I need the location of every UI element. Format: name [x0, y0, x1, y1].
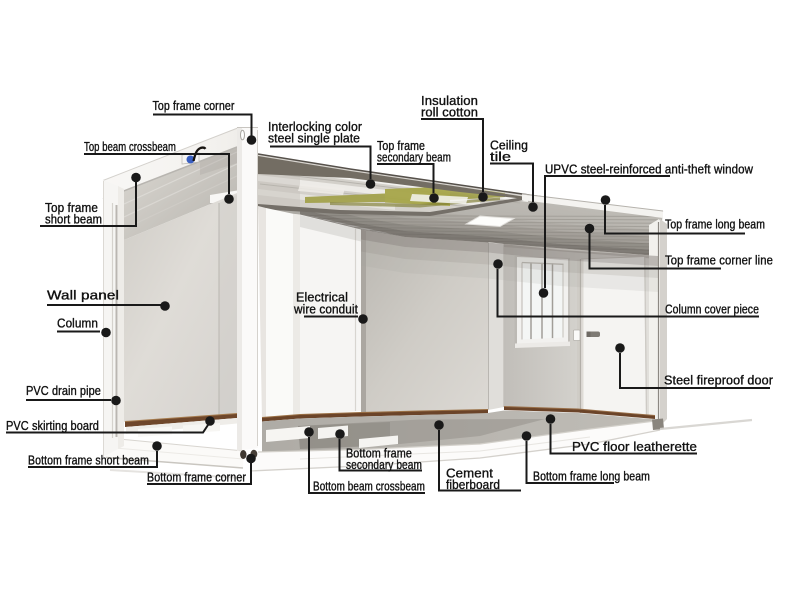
svg-text:UPVC steel-reinforced anti-the: UPVC steel-reinforced anti-theft window	[545, 163, 754, 177]
svg-text:Column cover piece: Column cover piece	[665, 303, 759, 317]
svg-text:Bottom frame long beam: Bottom frame long beam	[533, 470, 650, 484]
svg-text:roll cotton: roll cotton	[421, 106, 478, 120]
svg-text:secondary beam: secondary beam	[377, 151, 451, 165]
svg-text:short beam: short beam	[45, 213, 102, 227]
svg-text:Top frame corner: Top frame corner	[153, 99, 235, 113]
svg-text:PVC skirting board: PVC skirting board	[6, 419, 99, 433]
svg-text:Bottom frame short beam: Bottom frame short beam	[28, 454, 149, 468]
svg-text:Top frame long beam: Top frame long beam	[665, 218, 765, 232]
svg-text:Steel fireproof door: Steel fireproof door	[664, 374, 773, 388]
svg-text:Top beam crossbeam: Top beam crossbeam	[84, 140, 176, 154]
svg-text:secondary beam: secondary beam	[346, 458, 422, 472]
svg-text:Bottom beam crossbeam: Bottom beam crossbeam	[313, 480, 425, 494]
svg-text:fiberboard: fiberboard	[446, 478, 500, 492]
svg-text:Bottom frame corner: Bottom frame corner	[147, 471, 246, 485]
svg-text:PVC drain pipe: PVC drain pipe	[26, 384, 101, 398]
svg-text:tile: tile	[490, 150, 511, 164]
svg-text:PVC floor leatherette: PVC floor leatherette	[572, 440, 697, 454]
svg-text:Column: Column	[57, 317, 98, 331]
svg-text:Wall panel: Wall panel	[47, 289, 119, 303]
svg-text:steel single plate: steel single plate	[268, 132, 360, 146]
svg-text:Top frame corner line: Top frame corner line	[665, 254, 773, 268]
svg-text:wire conduit: wire conduit	[293, 303, 358, 317]
